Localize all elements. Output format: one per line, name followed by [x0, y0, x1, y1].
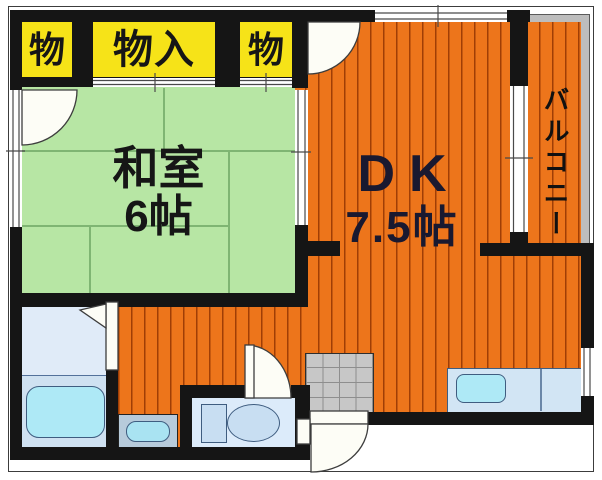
tatami-room-label: 和室 6帖: [86, 145, 231, 239]
closet-left-label: 物: [29, 32, 65, 68]
washroom-floor: [22, 307, 106, 375]
dk-room-name: DK: [312, 148, 492, 200]
closet-right-label: 物: [248, 32, 284, 68]
bathtub: [26, 386, 105, 438]
wall: [480, 243, 594, 256]
balcony-label: バルコニー: [542, 86, 568, 241]
wall: [10, 447, 310, 460]
toilet-bowl: [227, 404, 280, 442]
tatami-room-name: 和室: [113, 142, 205, 194]
closet-right: 物: [240, 22, 292, 78]
toilet-tank: [201, 404, 227, 443]
wall: [292, 10, 308, 88]
wall: [12, 10, 375, 22]
dk-room-label: DK 7.5帖: [312, 148, 492, 250]
dk-room-size: 7.5帖: [312, 206, 492, 250]
wall: [22, 77, 292, 87]
tatami-room-size: 6帖: [86, 195, 231, 239]
closet-center: 物入: [93, 22, 215, 78]
wall: [510, 10, 528, 88]
wall: [215, 10, 240, 87]
wall: [180, 398, 192, 447]
wall: [106, 368, 118, 447]
wall: [368, 412, 594, 425]
wall: [10, 227, 22, 460]
floor-plan: 物 物入 物: [0, 0, 602, 480]
entrance-tile: [305, 353, 374, 414]
closet-left: 物: [22, 22, 72, 78]
wall: [581, 243, 594, 350]
wall: [295, 385, 310, 447]
tatami-seam: [163, 88, 165, 150]
closet-center-label: 物入: [113, 30, 195, 70]
counter-divider: [540, 369, 542, 411]
washbasin-bowl: [126, 421, 170, 442]
wall: [10, 10, 22, 90]
kitchen-sink: [456, 374, 506, 403]
wall: [72, 10, 93, 87]
wall: [10, 293, 308, 307]
wall: [180, 385, 246, 398]
